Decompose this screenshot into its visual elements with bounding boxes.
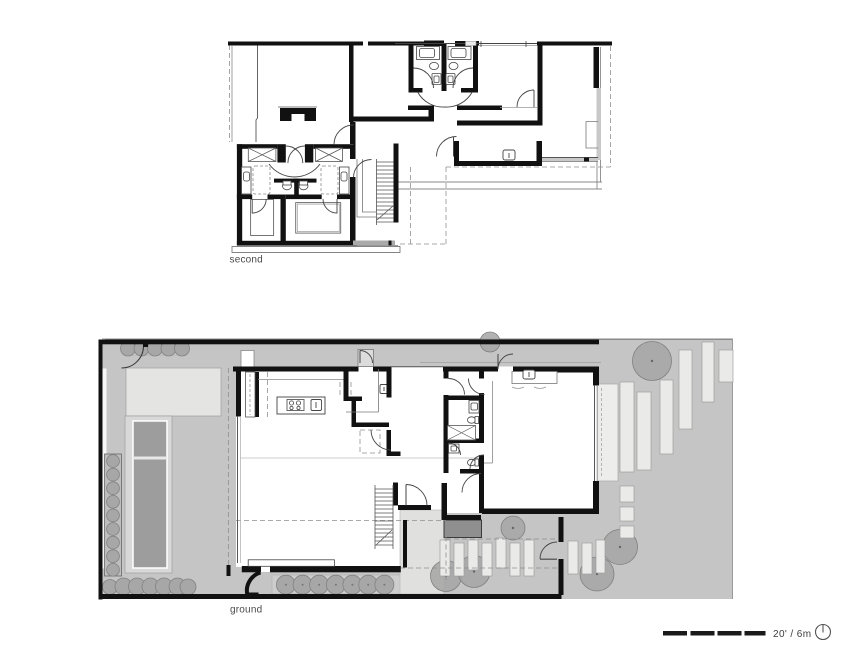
svg-text:20' / 6m: 20' / 6m — [773, 629, 811, 640]
svg-text:ground: ground — [230, 605, 262, 616]
svg-text:second: second — [230, 255, 263, 266]
